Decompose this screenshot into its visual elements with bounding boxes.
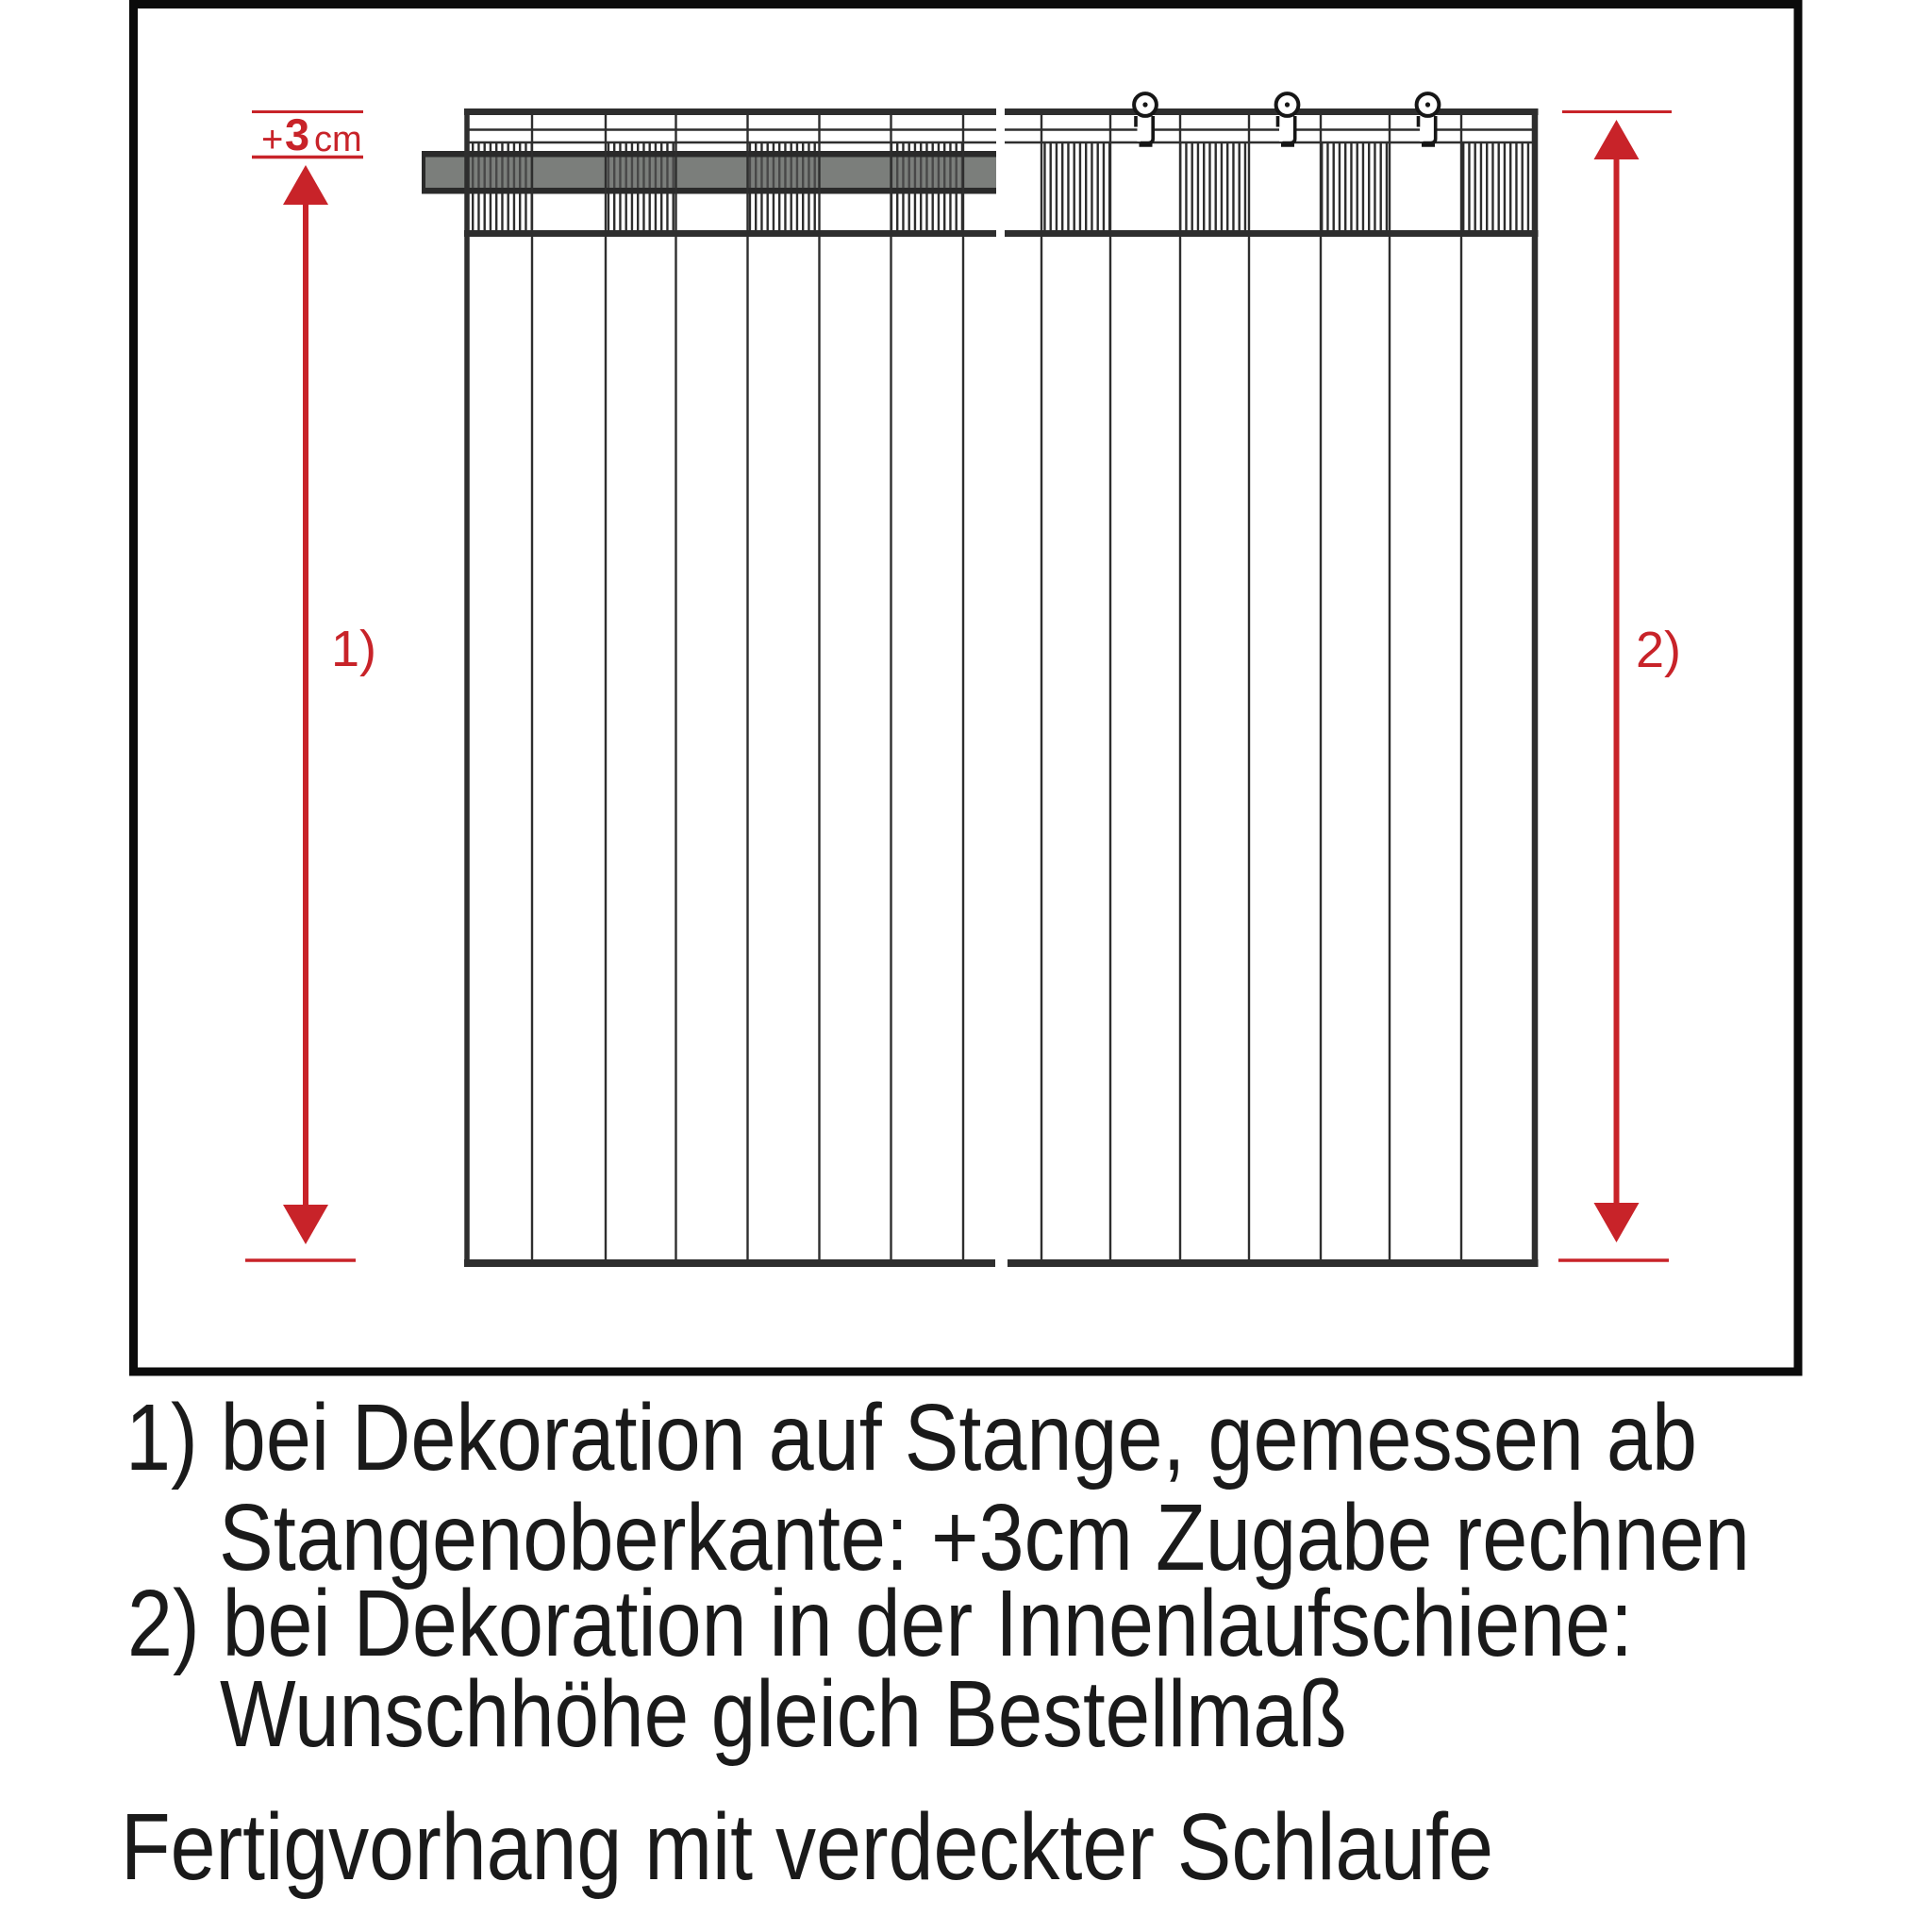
svg-text:2): 2) xyxy=(1636,622,1681,678)
svg-text:1): 1) xyxy=(331,621,376,677)
svg-text:Fertigvorhang mit verdeckter S: Fertigvorhang mit verdeckter Schlaufe xyxy=(121,1794,1493,1900)
svg-text:1) bei Dekoration auf Stange,: 1) bei Dekoration auf Stange, gemessen a… xyxy=(125,1385,1697,1491)
svg-text:Wunschhöhe gleich Bestellmaß: Wunschhöhe gleich Bestellmaß xyxy=(220,1661,1347,1767)
